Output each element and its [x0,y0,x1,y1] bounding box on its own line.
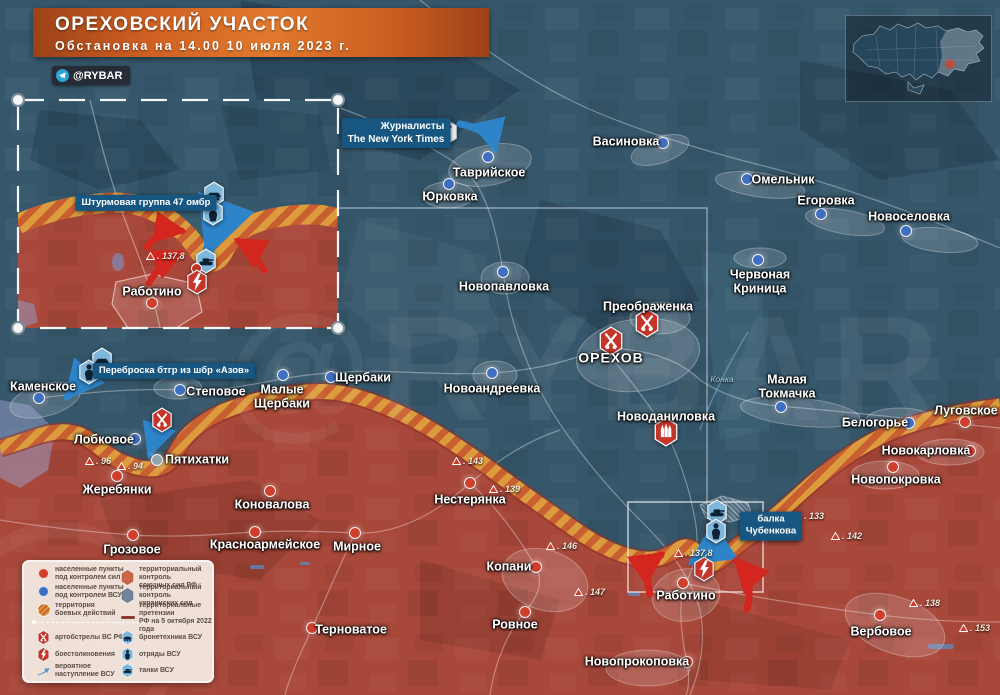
town-label: Новопавловка [459,280,549,294]
legend-item-right-4: отряды ВСУ [120,647,181,662]
town-dot [874,609,886,621]
town-label: Малые Щербаки [254,384,310,411]
town-label: Пятихатки [165,453,229,467]
town-label: Вербовое [850,625,911,639]
claims-icon [120,616,135,619]
hexclash-icon [36,647,51,662]
town-dot [486,367,498,379]
town-label: Каменское [10,380,76,394]
telegram-icon [56,69,69,82]
height-marker: . 137,8 [146,251,185,261]
town-dot [33,392,45,404]
town-label: Новопрокоповка [585,655,689,669]
clash-icon [693,556,715,582]
town-label: Белогорье [842,416,908,430]
artillery-icon [634,308,660,338]
height-marker: . 146 [546,541,577,551]
height-marker: . 147 [574,587,605,597]
height-marker: . 153 [959,623,990,633]
legend-item-text: боестолкновения [55,651,115,659]
town-label: Червоная Криница [730,269,790,296]
legend-item-text: артобстрелы ВС РФ [55,634,124,642]
town-dot [129,433,141,445]
town-dot [464,477,476,489]
town-dot [127,529,139,541]
town-label: Работино [656,589,715,603]
town-dot [151,454,163,466]
town-dot [681,656,693,668]
height-marker: . 143 [452,456,483,466]
legend-panel: населенные пункты под контролем сил РФна… [22,560,214,683]
town-dot [174,384,186,396]
town-dot [325,371,337,383]
town-label: Васиновка [593,135,660,149]
hexart-icon [36,630,51,645]
legend-item-text: танки ВСУ [139,667,174,675]
town-label: Новоселовка [868,210,950,224]
rybar-badge[interactable]: @RYBAR [52,66,130,85]
town-label: Терноватое [315,623,387,637]
ukraine-outline [853,23,984,94]
town-dot [815,208,827,220]
hexapc-icon [120,630,135,645]
legend-item-text: населенные пункты под контролем ВСУ [55,584,124,600]
title-banner: ОРЕХОВСКИЙ УЧАСТОК Обстановка на 14.00 1… [33,8,489,57]
legend-item-left-4: боестолкновения [36,647,115,662]
town-label: Степовое [186,385,245,399]
town-dot [959,416,971,428]
town-label: Таврийское [453,166,526,180]
map-title: ОРЕХОВСКИЙ УЧАСТОК [55,14,489,36]
dot-ua-icon [36,586,51,597]
town-dot [443,178,455,190]
town-dot [111,470,123,482]
bluearrow-icon [36,665,51,677]
town-label: Новокарловка [882,444,971,458]
clash-icon [186,269,208,295]
town-label: Юрковка [422,190,477,204]
callout-nyt-journalists: Журналисты The New York Times [342,118,451,148]
hextank-icon [120,663,135,678]
town-label: Ровное [492,618,537,632]
town-dot [657,137,669,149]
town-dot [277,369,289,381]
artillery-icon [598,326,624,356]
river-label: Конка [710,374,733,384]
town-label: Жеребянки [82,483,151,497]
legend-item-right-5: танки ВСУ [120,663,174,678]
artillery-icon [151,407,173,433]
troops-icon [705,518,727,544]
legend-item-text: территориальные претензии РФ на 5 октябр… [139,602,212,634]
town-label: Грозовое [103,543,160,557]
legend-item-text: отряды ВСУ [139,651,181,659]
ukraine-minimap [845,15,992,102]
town-label: Копани [486,560,531,574]
shelling-icon [653,417,679,447]
town-label: Малая Токмачка [759,374,816,401]
legend-item-left-3: артобстрелы ВС РФ [36,630,124,645]
town-label: Коновалова [235,498,310,512]
height-marker: . 139 [489,484,520,494]
town-label: Новопокровка [851,473,940,487]
town-dot [900,225,912,237]
legend-item-right-2: территориальные претензии РФ на 5 октябр… [120,602,212,634]
callout-azov-transfer: Переброска бтгр из шбр «Азов» [93,363,255,379]
town-dot [146,297,158,309]
town-dot [349,527,361,539]
town-label: Лобковое [74,433,134,447]
height-marker: . 94 [117,461,143,471]
town-dot [775,401,787,413]
callout-balka-chubenkova: балка Чубенкова [740,512,802,541]
map-stage: @RYBAR ВасиновкаОмельникЕгоровкаНовосело… [0,0,1000,695]
town-dot [964,445,976,457]
legend-item-left-2: территория боевых действий [36,602,116,618]
town-dot [264,485,276,497]
town-dot [249,526,261,538]
town-label: Красноармейское [210,538,320,552]
legend-item-text: бронетехника ВСУ [139,634,202,642]
legend-item-text: территория боевых действий [55,602,116,618]
rybar-badge-label: @RYBAR [73,70,122,82]
legend-item-text: вероятное наступление ВСУ [55,663,115,679]
town-label: Щербаки [335,371,391,385]
town-dot [306,622,318,634]
combat-icon [36,603,51,617]
height-marker: . 96 [85,456,111,466]
height-marker: . 142 [831,531,862,541]
town-dot [497,266,509,278]
town-dot [482,151,494,163]
town-label: Мирное [333,540,381,554]
map-subtitle: Обстановка на 14.00 10 июля 2023 г. [55,39,489,53]
callout-assault-group-47: Штурмовая группа 47 омбр [76,195,217,211]
legend-item-right-3: бронетехника ВСУ [120,630,202,645]
town-dot [752,254,764,266]
dot-rf-icon [36,568,51,579]
town-dot [519,606,531,618]
area-highlight-dot [947,61,953,67]
town-dot [903,417,915,429]
legend-item-left-0: населенные пункты под контролем сил РФ [36,566,133,582]
town-dot [677,577,689,589]
town-dot [741,173,753,185]
height-marker: . 138 [909,598,940,608]
hextroops-icon [120,647,135,662]
town-label: Омельник [751,173,814,187]
town-dot [887,461,899,473]
town-label: Новоандреевка [444,382,541,396]
town-label: Нестерянка [434,493,505,507]
town-label: Егоровка [797,194,854,208]
legend-item-left-1: населенные пункты под контролем ВСУ [36,584,124,600]
legend-item-left-5: вероятное наступление ВСУ [36,663,115,679]
town-dot [530,561,542,573]
